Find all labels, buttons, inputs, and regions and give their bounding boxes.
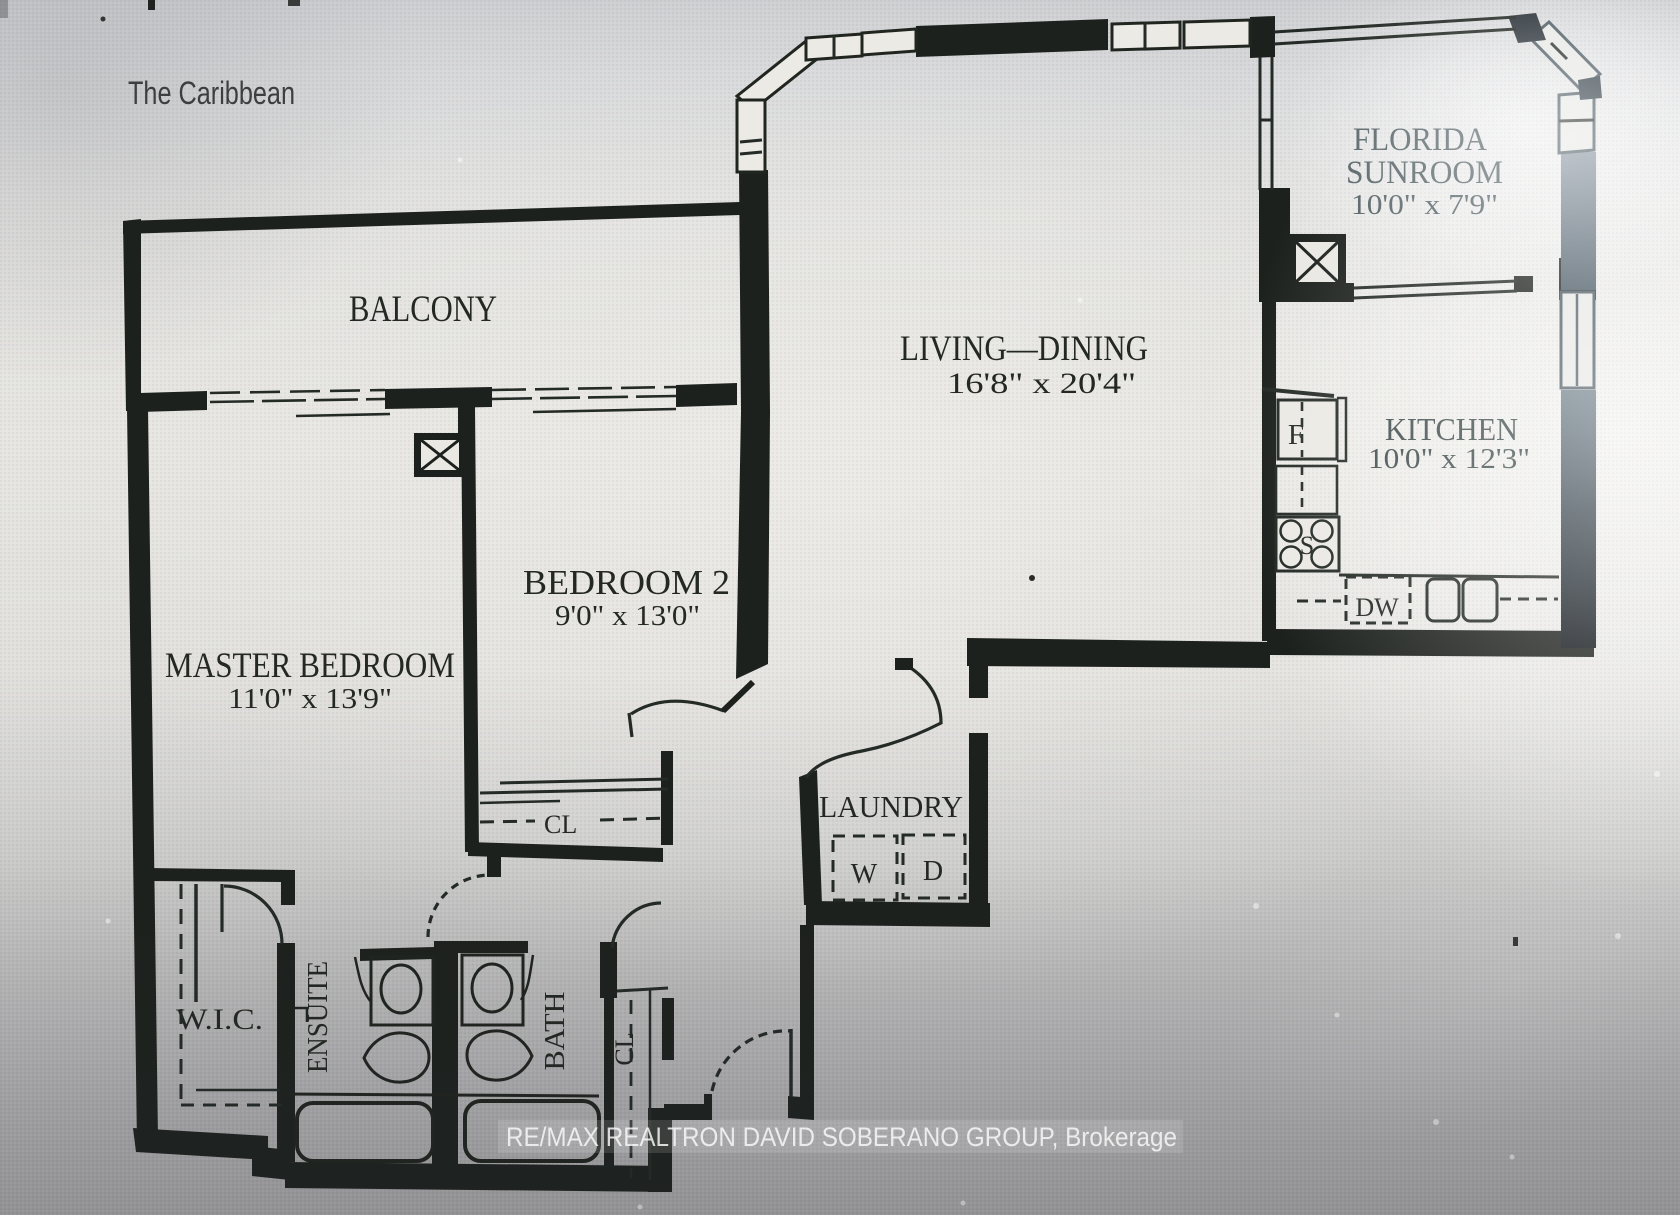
svg-text:BALCONY: BALCONY <box>349 289 497 330</box>
svg-text:The Caribbean: The Caribbean <box>128 75 295 111</box>
svg-text:BEDROOM 2: BEDROOM 2 <box>523 563 730 602</box>
svg-text:LAUNDRY: LAUNDRY <box>819 789 963 824</box>
svg-text:9'0" x 13'0": 9'0" x 13'0" <box>555 600 700 632</box>
svg-text:MASTER BEDROOM: MASTER BEDROOM <box>165 645 455 685</box>
svg-text:RE/MAX REALTRON DAVID SOBERANO: RE/MAX REALTRON DAVID SOBERANO GROUP, Br… <box>506 1122 1177 1152</box>
svg-text:11'0" x 13'9": 11'0" x 13'9" <box>228 683 392 715</box>
svg-text:16'8" x 20'4": 16'8" x 20'4" <box>947 367 1136 400</box>
svg-text:LIVING—DINING: LIVING—DINING <box>900 328 1148 368</box>
svg-text:CL: CL <box>544 810 577 839</box>
